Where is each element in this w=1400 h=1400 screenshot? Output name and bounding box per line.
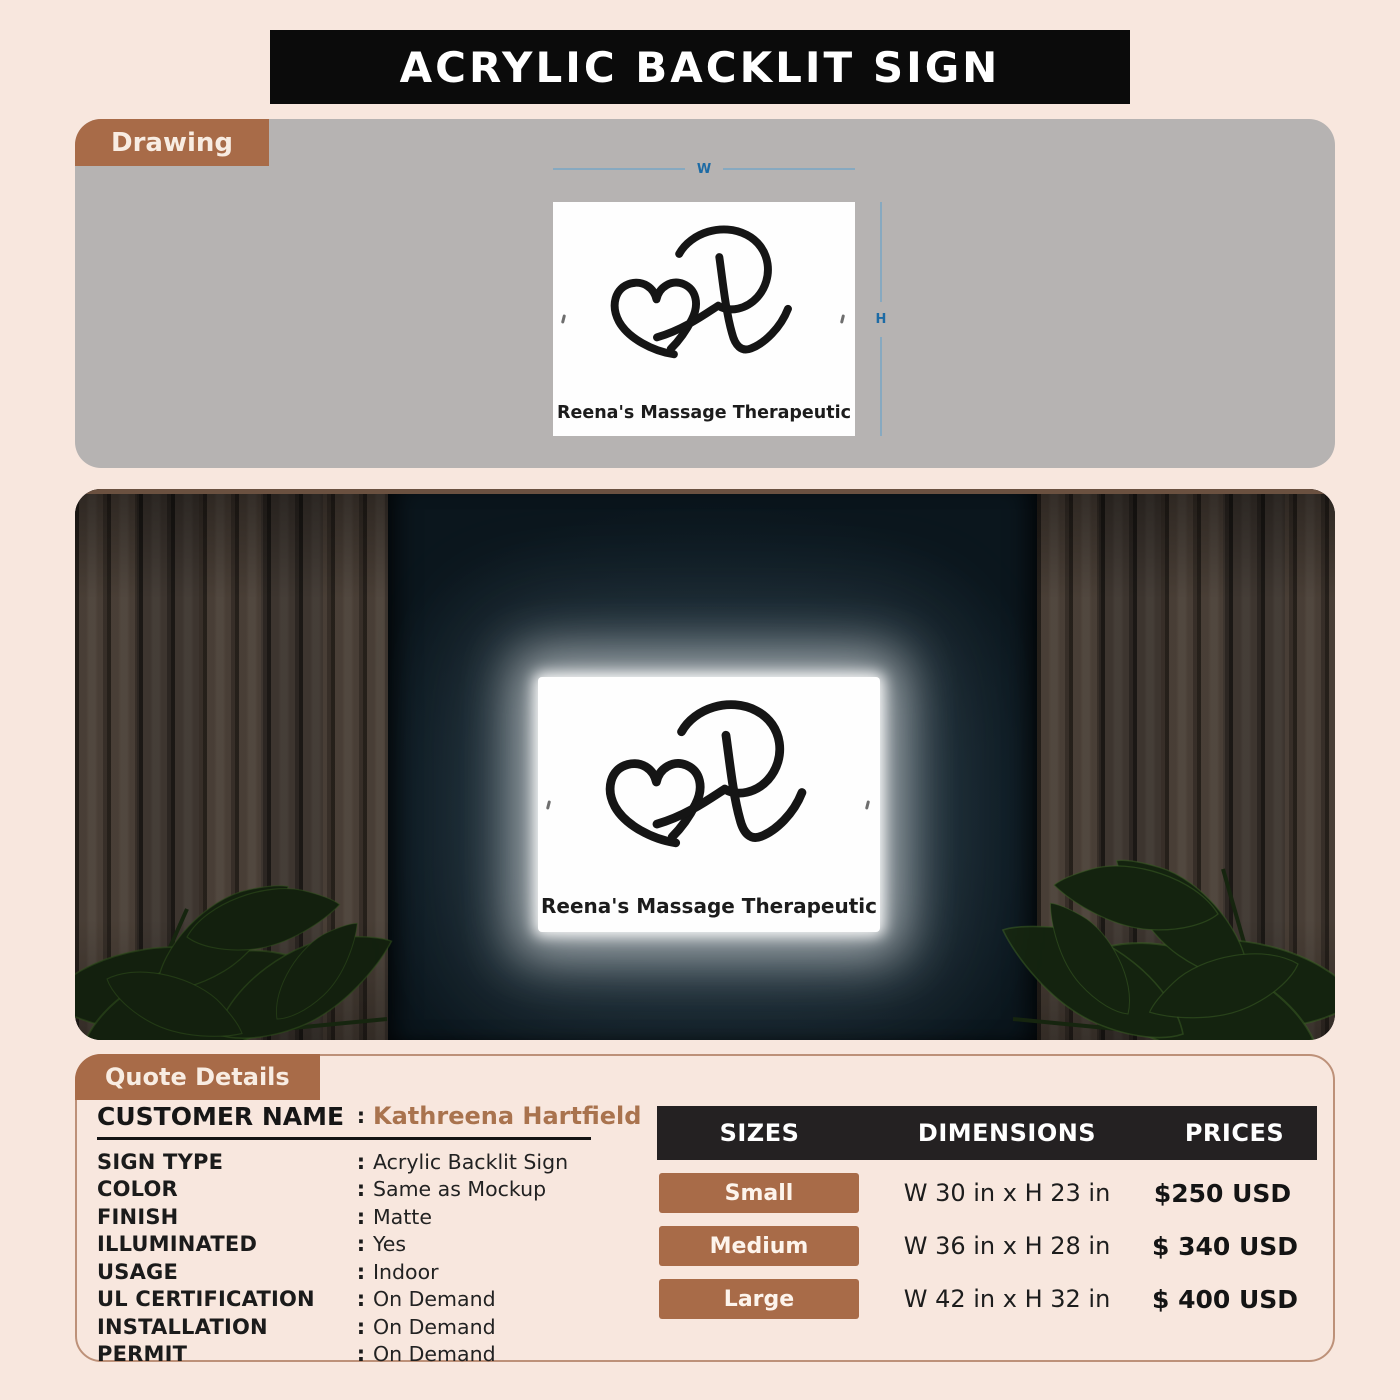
sign-caption: Reena's Massage Therapeutic [538, 894, 880, 918]
field-value: Matte [373, 1205, 647, 1229]
quote-details-tab: Quote Details [75, 1054, 320, 1100]
price-table: SIZES DIMENSIONS PRICES Small W 30 in x … [657, 1106, 1317, 1319]
customer-name-value: Kathreena Hartfield [373, 1102, 647, 1130]
drawing-section: Drawing W H Reena's Massage Therapeutic [75, 119, 1335, 468]
page-title: ACRYLIC BACKLIT SIGN [270, 30, 1130, 104]
height-dimension: H [873, 202, 889, 436]
heart-r-logo-icon [579, 692, 839, 858]
field-value: Yes [373, 1232, 647, 1256]
height-dimension-label: H [876, 312, 887, 327]
dimensions-value: W 42 in x H 32 in [862, 1285, 1152, 1313]
header-dimensions: DIMENSIONS [862, 1119, 1152, 1147]
field-row-illuminated: ILLUMINATED Yes [97, 1231, 647, 1259]
price-table-header: SIZES DIMENSIONS PRICES [657, 1106, 1317, 1160]
field-label: UL CERTIFICATION [97, 1287, 349, 1311]
field-label: FINISH [97, 1205, 349, 1229]
price-row-small: Small W 30 in x H 23 in $250 USD [657, 1173, 1317, 1213]
width-dimension-label: W [697, 162, 711, 177]
field-row-finish: FINISH Matte [97, 1203, 647, 1231]
field-label: PERMIT [97, 1342, 349, 1366]
size-medium-button[interactable]: Medium [659, 1226, 859, 1266]
quote-details-section: Quote Details CUSTOMER NAME Kathreena Ha… [75, 1054, 1335, 1362]
price-value: $250 USD [1152, 1179, 1317, 1208]
field-value: Same as Mockup [373, 1177, 647, 1201]
customer-name-row: CUSTOMER NAME Kathreena Hartfield [97, 1100, 647, 1132]
field-value: Indoor [373, 1260, 647, 1284]
tick-mark-icon [840, 314, 845, 323]
drawing-tab: Drawing [75, 119, 269, 166]
colon-separator [349, 1342, 373, 1366]
field-label: INSTALLATION [97, 1315, 349, 1339]
size-large-button[interactable]: Large [659, 1279, 859, 1319]
field-label: ILLUMINATED [97, 1232, 349, 1256]
field-label: USAGE [97, 1260, 349, 1284]
field-value: On Demand [373, 1342, 647, 1366]
sign-drawing: Reena's Massage Therapeutic [553, 202, 855, 436]
price-value: $ 340 USD [1152, 1232, 1317, 1261]
quote-sheet-page: ACRYLIC BACKLIT SIGN Drawing W H Reena's… [0, 0, 1400, 1400]
colon-separator [349, 1205, 373, 1229]
colon-separator [349, 1232, 373, 1256]
tick-mark-icon [561, 314, 566, 323]
wall-top-edge [75, 489, 1335, 494]
colon-separator [349, 1150, 373, 1174]
dimension-line [553, 168, 685, 170]
dimension-line [880, 337, 882, 437]
field-row-ul-certification: UL CERTIFICATION On Demand [97, 1286, 647, 1314]
dimensions-value: W 30 in x H 23 in [862, 1179, 1152, 1207]
colon-separator [349, 1104, 373, 1128]
field-row-permit: PERMIT On Demand [97, 1341, 647, 1369]
plant-left-icon [75, 869, 507, 1040]
field-row-sign-type: SIGN TYPE Acrylic Backlit Sign [97, 1148, 647, 1176]
sign-caption: Reena's Massage Therapeutic [553, 403, 855, 423]
divider-line [97, 1137, 591, 1140]
mockup-section: Reena's Massage Therapeutic [75, 489, 1335, 1040]
colon-separator [349, 1315, 373, 1339]
price-row-medium: Medium W 36 in x H 28 in $ 340 USD [657, 1226, 1317, 1266]
price-row-large: Large W 42 in x H 32 in $ 400 USD [657, 1279, 1317, 1319]
dimensions-value: W 36 in x H 28 in [862, 1232, 1152, 1260]
size-small-button[interactable]: Small [659, 1173, 859, 1213]
dimension-line [723, 168, 855, 170]
quote-fields: CUSTOMER NAME Kathreena Hartfield SIGN T… [97, 1100, 647, 1368]
width-dimension: W [553, 161, 855, 177]
backlit-sign-mockup: Reena's Massage Therapeutic [538, 677, 880, 932]
plant-right-icon [953, 839, 1335, 1040]
header-prices: PRICES [1152, 1119, 1317, 1147]
colon-separator [349, 1177, 373, 1201]
field-value: Acrylic Backlit Sign [373, 1150, 647, 1174]
field-value: On Demand [373, 1287, 647, 1311]
price-value: $ 400 USD [1152, 1285, 1317, 1314]
heart-r-logo-icon [587, 218, 821, 368]
colon-separator [349, 1260, 373, 1284]
tick-mark-icon [865, 800, 870, 809]
customer-name-label: CUSTOMER NAME [97, 1102, 349, 1131]
field-value: On Demand [373, 1315, 647, 1339]
field-row-usage: USAGE Indoor [97, 1258, 647, 1286]
tick-mark-icon [546, 800, 551, 809]
header-sizes: SIZES [657, 1119, 862, 1147]
colon-separator [349, 1287, 373, 1311]
field-row-color: COLOR Same as Mockup [97, 1176, 647, 1204]
field-label: SIGN TYPE [97, 1150, 349, 1174]
field-label: COLOR [97, 1177, 349, 1201]
field-row-installation: INSTALLATION On Demand [97, 1313, 647, 1341]
dimension-line [880, 202, 882, 302]
